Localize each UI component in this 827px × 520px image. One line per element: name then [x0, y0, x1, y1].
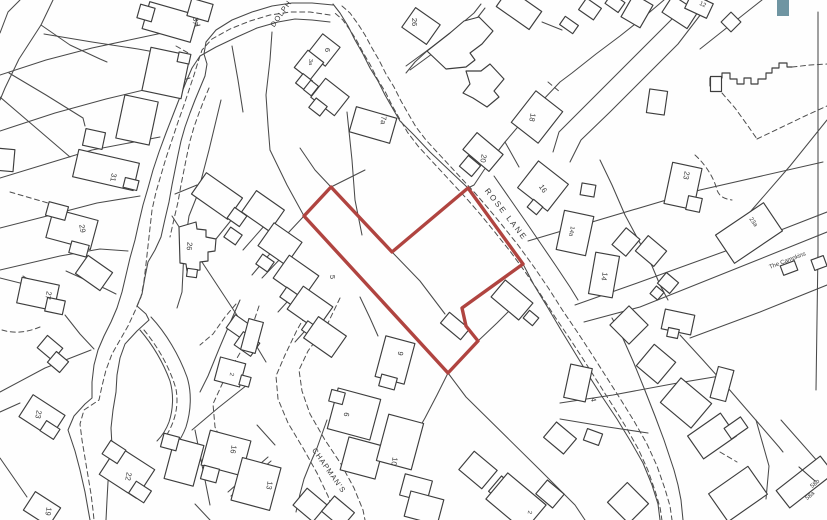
- svg-text:13: 13: [264, 481, 274, 491]
- svg-text:22: 22: [123, 472, 133, 482]
- svg-text:23: 23: [681, 171, 691, 181]
- svg-text:31: 31: [108, 173, 118, 183]
- svg-text:ROSE LANE: ROSE LANE: [483, 187, 529, 243]
- svg-text:23: 23: [33, 410, 43, 420]
- svg-text:DOLPH: DOLPH: [268, 0, 293, 29]
- svg-text:26: 26: [410, 18, 419, 26]
- svg-text:27: 27: [43, 291, 53, 301]
- svg-text:4: 4: [589, 397, 599, 403]
- svg-text:14: 14: [599, 272, 609, 282]
- svg-text:6: 6: [323, 48, 332, 52]
- svg-text:3a: 3a: [307, 59, 313, 66]
- svg-text:18: 18: [527, 113, 537, 123]
- svg-text:16: 16: [228, 445, 238, 455]
- svg-text:37: 37: [191, 17, 201, 26]
- svg-text:7a: 7a: [379, 116, 389, 126]
- svg-text:10: 10: [389, 457, 399, 467]
- svg-text:5: 5: [328, 275, 337, 279]
- svg-text:19: 19: [43, 507, 53, 517]
- svg-text:26: 26: [185, 242, 195, 251]
- svg-text:20: 20: [478, 154, 488, 164]
- svg-text:29: 29: [77, 224, 87, 234]
